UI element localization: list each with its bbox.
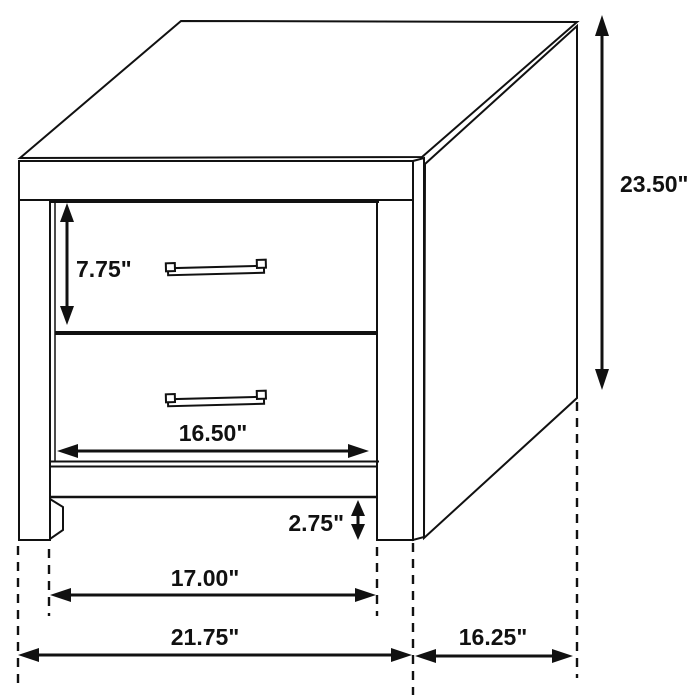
right-front-stile	[377, 200, 413, 540]
bottom-drawer-handle	[166, 391, 266, 407]
dimension-label-overall-width: 21.75"	[171, 624, 239, 650]
dimension-label-top-drawer-height: 7.75"	[76, 256, 132, 282]
tabletop-front-edge	[19, 161, 413, 200]
left-leg-inner-face	[50, 499, 63, 539]
top-drawer-handle	[166, 260, 266, 276]
furniture-dimension-diagram: 7.75" 23.50" 16.50" 2.75" 17	[0, 0, 700, 700]
dimension-overall-height: 23.50"	[595, 15, 688, 390]
dimension-label-drawer-width: 16.50"	[179, 420, 247, 446]
dimension-label-base-clearance: 2.75"	[288, 510, 344, 536]
left-front-leg	[19, 200, 50, 540]
dimension-overall-width: 21.75"	[18, 624, 412, 662]
dimension-label-inner-leg-width: 17.00"	[171, 565, 239, 591]
dimension-label-depth: 16.25"	[459, 624, 527, 650]
dimension-inner-leg-width: 17.00"	[50, 565, 376, 602]
dimension-label-overall-height: 23.50"	[620, 171, 688, 197]
dimension-base-clearance: 2.75"	[288, 500, 365, 540]
nightstand-line-drawing: 7.75" 23.50" 16.50" 2.75" 17	[0, 0, 700, 700]
dimension-depth: 16.25"	[415, 624, 573, 663]
dimension-top-drawer-height: 7.75"	[60, 203, 132, 325]
front-right-edge-strip	[413, 158, 424, 540]
dimension-drawer-width: 16.50"	[57, 420, 369, 458]
